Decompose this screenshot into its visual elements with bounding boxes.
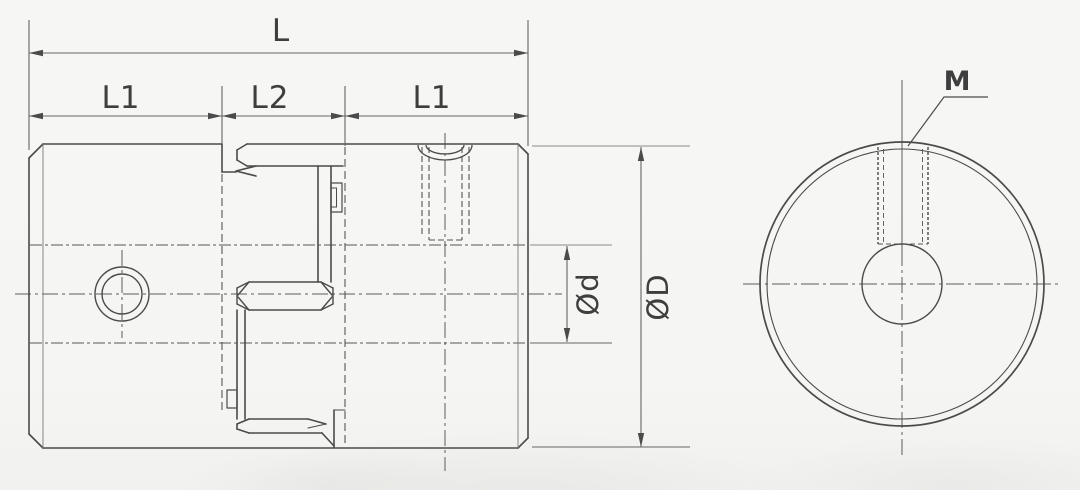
hidden-bore-lines bbox=[30, 147, 528, 446]
label-center-length: L2 bbox=[251, 80, 290, 116]
label-thread: M bbox=[944, 66, 971, 97]
coupling-drawing: L L1 L2 L1 Ød ØD M bbox=[0, 0, 1080, 490]
label-bore-diameter: Ød bbox=[571, 272, 605, 315]
top-jaw-bar bbox=[236, 144, 518, 176]
center-pin-bar bbox=[237, 282, 333, 310]
thread-hole bbox=[878, 147, 928, 244]
label-overall-length: L bbox=[272, 13, 290, 49]
lower-jaw bbox=[227, 310, 345, 447]
technical-drawing-page: L L1 L2 L1 Ød ØD M bbox=[0, 0, 1080, 490]
right-hub bbox=[518, 144, 528, 448]
label-right-hub-length: L1 bbox=[413, 80, 452, 116]
spider-plate bbox=[318, 166, 342, 282]
coupling-side-outline bbox=[29, 144, 528, 448]
label-left-hub-length: L1 bbox=[102, 80, 141, 116]
label-outer-diameter: ØD bbox=[641, 273, 675, 320]
thread-label-leader bbox=[908, 97, 988, 146]
centerlines bbox=[15, 133, 562, 471]
front-view: M bbox=[743, 66, 1062, 456]
front-view-centerlines bbox=[743, 80, 1062, 456]
